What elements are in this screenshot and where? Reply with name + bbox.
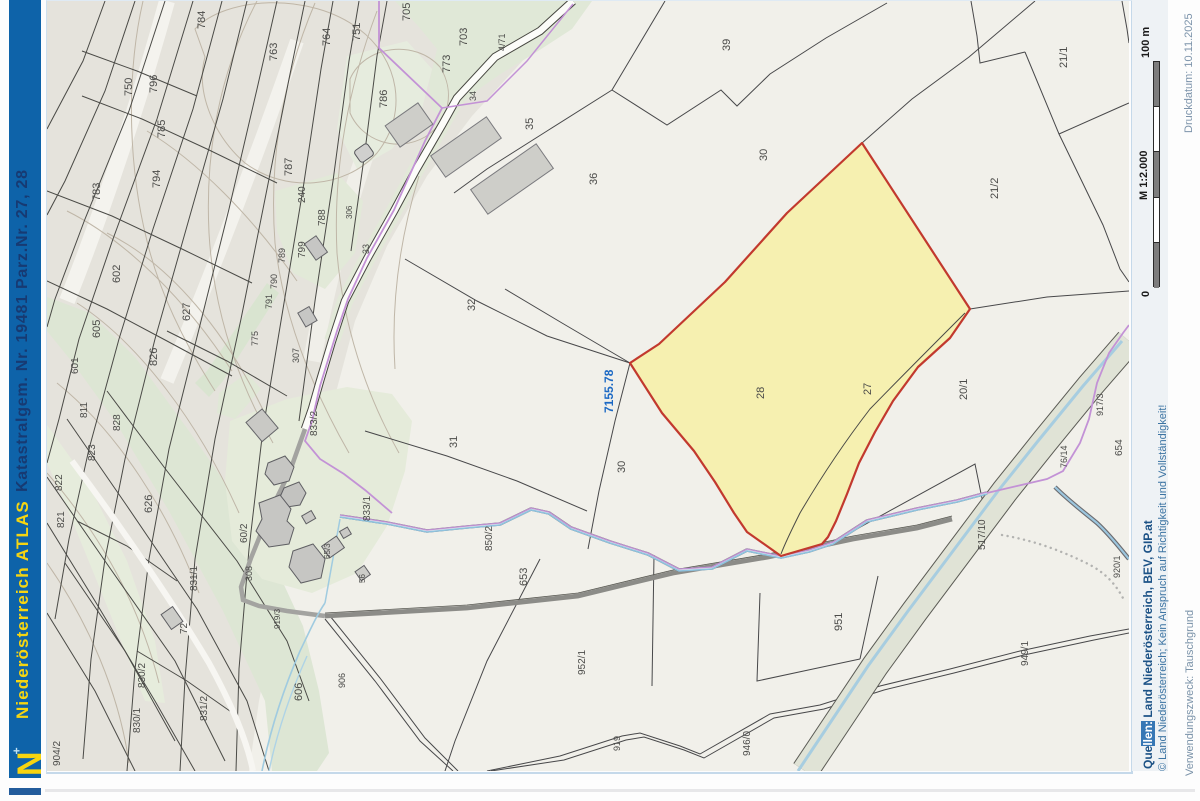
- svg-text:4/71: 4/71: [497, 33, 507, 51]
- svg-text:65/3: 65/3: [323, 543, 332, 559]
- svg-text:705: 705: [401, 3, 413, 21]
- svg-text:904/2: 904/2: [52, 741, 63, 766]
- svg-text:830/2: 830/2: [137, 663, 148, 688]
- svg-text:7155.78: 7155.78: [602, 369, 616, 413]
- svg-text:750: 750: [123, 78, 135, 96]
- svg-text:21/1: 21/1: [1058, 47, 1070, 68]
- svg-text:831/2: 831/2: [199, 696, 210, 721]
- svg-text:826: 826: [148, 348, 160, 366]
- svg-text:775: 775: [250, 331, 260, 346]
- svg-text:20/1: 20/1: [958, 379, 970, 400]
- svg-text:31: 31: [448, 436, 460, 448]
- svg-text:306: 306: [345, 205, 354, 219]
- svg-text:952/1: 952/1: [577, 650, 588, 675]
- svg-text:39: 39: [721, 39, 733, 51]
- svg-text:606: 606: [293, 683, 305, 701]
- svg-text:787: 787: [283, 158, 295, 176]
- svg-text:703: 703: [458, 28, 470, 46]
- svg-text:517/10: 517/10: [977, 519, 988, 550]
- svg-text:830/1: 830/1: [132, 708, 143, 733]
- svg-text:30: 30: [616, 461, 628, 473]
- svg-text:240: 240: [297, 186, 308, 203]
- svg-text:72: 72: [179, 622, 190, 634]
- svg-text:790: 790: [269, 274, 279, 289]
- svg-text:605: 605: [91, 320, 103, 338]
- svg-text:602: 602: [111, 265, 123, 283]
- svg-text:773: 773: [441, 55, 453, 73]
- svg-text:28: 28: [755, 387, 767, 399]
- svg-text:831/1: 831/1: [189, 566, 200, 591]
- svg-text:850/2: 850/2: [484, 526, 495, 551]
- svg-text:917/3: 917/3: [1095, 393, 1105, 416]
- svg-text:751: 751: [351, 23, 363, 41]
- svg-text:653: 653: [518, 568, 530, 586]
- svg-text:60/2: 60/2: [239, 523, 250, 543]
- svg-text:626: 626: [143, 495, 155, 513]
- svg-text:951: 951: [833, 613, 845, 631]
- svg-text:906: 906: [337, 673, 347, 688]
- svg-text:56: 56: [358, 574, 367, 583]
- svg-text:308: 308: [244, 566, 254, 581]
- svg-text:794: 794: [151, 170, 163, 188]
- svg-text:946/0: 946/0: [742, 731, 753, 756]
- svg-text:627: 627: [181, 303, 193, 321]
- svg-text:33: 33: [361, 244, 371, 254]
- svg-text:27: 27: [862, 383, 874, 395]
- svg-text:654: 654: [1114, 439, 1125, 456]
- svg-text:949/1: 949/1: [1020, 641, 1031, 666]
- svg-text:789: 789: [277, 248, 287, 263]
- svg-text:35: 35: [524, 118, 536, 130]
- svg-text:833/2: 833/2: [309, 411, 320, 436]
- svg-text:307: 307: [291, 348, 301, 363]
- svg-text:784: 784: [196, 11, 208, 29]
- svg-text:601: 601: [70, 357, 81, 374]
- svg-text:34: 34: [468, 91, 478, 101]
- svg-text:920/1: 920/1: [1112, 555, 1122, 578]
- svg-text:788: 788: [317, 209, 328, 226]
- svg-text:36: 36: [588, 173, 600, 185]
- svg-text:30: 30: [758, 149, 770, 161]
- svg-text:76/14: 76/14: [1059, 445, 1069, 468]
- svg-text:833/1: 833/1: [362, 496, 373, 521]
- svg-text:21/2: 21/2: [989, 178, 1001, 199]
- svg-text:796: 796: [148, 75, 160, 93]
- svg-text:799: 799: [297, 241, 308, 258]
- svg-text:823: 823: [87, 444, 98, 461]
- svg-text:811: 811: [79, 402, 90, 418]
- svg-text:919: 919: [612, 736, 622, 751]
- svg-text:822: 822: [54, 474, 65, 491]
- svg-text:763: 763: [268, 43, 280, 61]
- svg-text:791: 791: [264, 294, 274, 309]
- svg-text:828: 828: [112, 414, 123, 431]
- svg-text:785: 785: [156, 120, 168, 138]
- svg-text:32: 32: [466, 299, 478, 311]
- svg-text:783: 783: [91, 183, 103, 201]
- svg-text:821: 821: [56, 511, 67, 528]
- svg-text:786: 786: [378, 90, 390, 108]
- svg-text:764: 764: [321, 28, 333, 46]
- svg-text:919/3: 919/3: [273, 608, 282, 629]
